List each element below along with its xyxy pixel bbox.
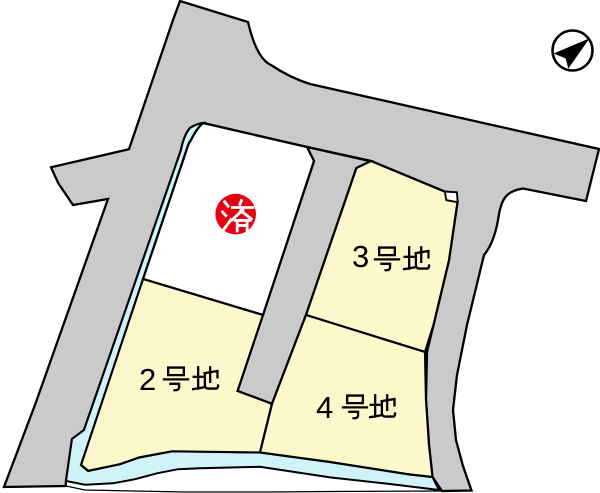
svg-text:2: 2 <box>139 362 156 397</box>
svg-text:3: 3 <box>352 239 369 274</box>
svg-text:4: 4 <box>316 390 333 425</box>
